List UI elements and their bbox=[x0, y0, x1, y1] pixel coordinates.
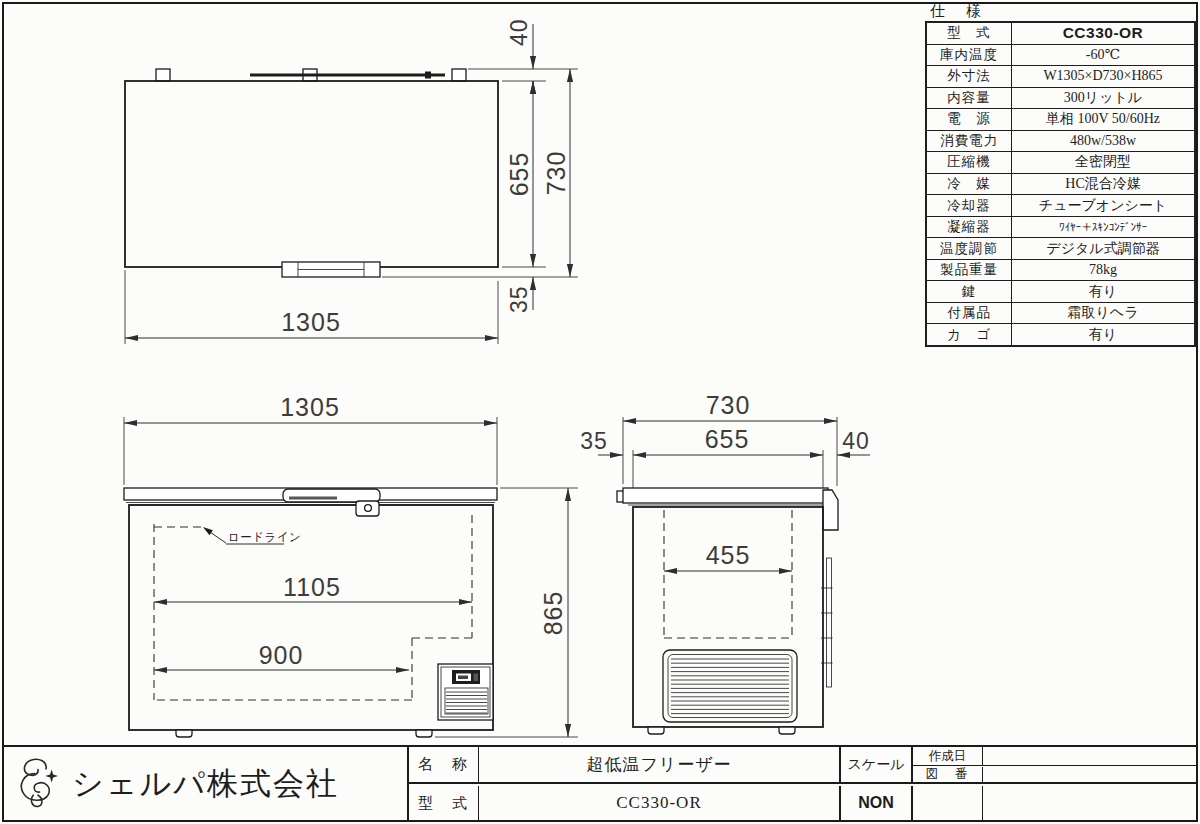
spec-label: 電 源 bbox=[927, 109, 1012, 130]
side-vent-grille bbox=[663, 650, 797, 722]
side-hinge bbox=[823, 490, 838, 530]
spec-label: 付属品 bbox=[927, 303, 1012, 324]
spec-row-outer-size: 外寸法 W1305×D730×H865 bbox=[927, 65, 1194, 87]
dim-side-inner: 655 bbox=[705, 425, 750, 453]
spec-row-compressor: 圧縮機 全密閉型 bbox=[927, 151, 1194, 173]
dim-side-total: 730 bbox=[706, 391, 751, 419]
spec-table: 型 式 CC330-OR 庫内温度 -60℃ 外寸法 W1305×D730×H8… bbox=[925, 21, 1196, 347]
side-lid bbox=[623, 488, 828, 503]
dim-top-total: 730 bbox=[542, 151, 570, 196]
spec-value: HC混合冷媒 bbox=[1012, 174, 1194, 195]
spec-row-condenser: 凝縮器 ﾜｲﾔｰ＋ｽｷﾝｺﾝﾃﾞﾝｻｰ bbox=[927, 216, 1194, 238]
scale-label-cell: スケール bbox=[841, 747, 913, 784]
dim-side-basket: 455 bbox=[706, 541, 751, 569]
spec-label: 凝縮器 bbox=[927, 217, 1012, 238]
company-cell: シェルパ株式会社 bbox=[2, 747, 409, 820]
side-foot-right bbox=[779, 727, 795, 734]
name-label-cell: 名 称 bbox=[409, 747, 479, 784]
spec-value: W1305×D730×H865 bbox=[1012, 66, 1194, 87]
spec-label: 型 式 bbox=[927, 23, 1012, 44]
spec-row-accessory: 付属品 霜取りヘラ bbox=[927, 302, 1194, 324]
spec-label: カ ゴ bbox=[927, 324, 1012, 345]
spec-row-thermostat: 温度調節 デジタル式調節器 bbox=[927, 237, 1194, 259]
spec-row-refrigerant: 冷 媒 HC混合冷媒 bbox=[927, 173, 1194, 195]
spec-value: 300リットル bbox=[1012, 88, 1194, 109]
spec-label: 外寸法 bbox=[927, 66, 1012, 87]
spec-label: 鍵 bbox=[927, 281, 1012, 302]
company-logo-icon bbox=[14, 754, 62, 814]
spec-value: 有り bbox=[1012, 281, 1194, 302]
hinge-right bbox=[452, 69, 466, 81]
dim-top-front: 35 bbox=[506, 285, 532, 313]
front-foot-left bbox=[176, 730, 192, 737]
dim-front-height: 865 bbox=[539, 591, 567, 636]
drawing-no-label-cell: 図 番 bbox=[913, 767, 983, 784]
spec-value: 全密閉型 bbox=[1012, 152, 1194, 173]
side-interior-outline bbox=[664, 510, 792, 638]
drawing-sheet: 40 655 730 35 1305 1305 bbox=[0, 0, 1200, 824]
spec-value: 霜取りヘラ bbox=[1012, 303, 1194, 324]
spec-row-key: 鍵 有り bbox=[927, 280, 1194, 302]
side-view: 730 35 655 40 455 bbox=[580, 391, 870, 734]
dim-front-width: 1305 bbox=[280, 393, 340, 421]
spec-label: 冷 媒 bbox=[927, 174, 1012, 195]
spec-row-capacity: 内容量 300リットル bbox=[927, 87, 1194, 109]
spec-value: 有り bbox=[1012, 324, 1194, 345]
spec-value: デジタル式調節器 bbox=[1012, 238, 1194, 259]
side-body bbox=[633, 507, 823, 727]
rod-stopper bbox=[425, 72, 431, 79]
top-view-body bbox=[125, 81, 498, 267]
spec-label: 庫内温度 bbox=[927, 45, 1012, 66]
scale-value-cell: NON bbox=[841, 786, 913, 820]
spec-value: CC330-OR bbox=[1012, 23, 1194, 44]
spec-label: 圧縮機 bbox=[927, 152, 1012, 173]
spec-row-consumption: 消費電力 480w/538w bbox=[927, 130, 1194, 152]
front-handle bbox=[283, 489, 380, 502]
spec-value: 78kg bbox=[1012, 260, 1194, 281]
title-block: シェルパ株式会社 名 称 超低温フリーザー 型 式 CC330-OR スケール … bbox=[2, 745, 1196, 820]
date-value-cell bbox=[983, 747, 1196, 766]
logo-sparkle bbox=[45, 769, 58, 782]
dim-front-lower: 900 bbox=[259, 641, 304, 669]
drawing-no-value-cell bbox=[983, 767, 1196, 784]
dim-front-inner: 1105 bbox=[283, 573, 341, 601]
dim-top-width: 1305 bbox=[281, 308, 341, 336]
spec-row-basket: カ ゴ 有り bbox=[927, 323, 1194, 345]
model-number-cell: CC330-OR bbox=[479, 786, 841, 820]
spec-label: 温度調節 bbox=[927, 238, 1012, 259]
dim-side-front: 35 bbox=[580, 428, 608, 454]
spec-row-temp: 庫内温度 -60℃ bbox=[927, 44, 1194, 66]
spec-row-power: 電 源 単相 100V 50/60Hz bbox=[927, 108, 1194, 130]
spec-row-cooler: 冷却器 チューブオンシート bbox=[927, 194, 1194, 216]
front-foot-right bbox=[416, 730, 432, 737]
hinge-left bbox=[156, 69, 170, 81]
top-view: 40 655 730 35 1305 bbox=[125, 18, 578, 344]
spec-label: 消費電力 bbox=[927, 131, 1012, 152]
spec-value: チューブオンシート bbox=[1012, 195, 1194, 216]
interior-outline bbox=[154, 515, 472, 700]
spec-label: 冷却器 bbox=[927, 195, 1012, 216]
spec-row-model: 型 式 CC330-OR bbox=[927, 23, 1194, 44]
side-foot-left bbox=[648, 727, 664, 734]
spec-value: ﾜｲﾔｰ＋ｽｷﾝｺﾝﾃﾞﾝｻｰ bbox=[1012, 217, 1194, 238]
front-view: 1305 bbox=[124, 393, 578, 737]
company-name: シェルパ株式会社 bbox=[72, 763, 339, 805]
model-label-cell: 型 式 bbox=[409, 786, 479, 820]
spec-row-weight: 製品重量 78kg bbox=[927, 259, 1194, 281]
dim-side-back: 40 bbox=[842, 428, 870, 454]
spec-value: 480w/538w bbox=[1012, 131, 1194, 152]
empty-value-cell bbox=[983, 786, 1196, 820]
callout-arrow bbox=[203, 527, 213, 535]
spec-label: 製品重量 bbox=[927, 260, 1012, 281]
condenser-strip bbox=[827, 558, 832, 687]
spec-value: 単相 100V 50/60Hz bbox=[1012, 109, 1194, 130]
spec-value: -60℃ bbox=[1012, 45, 1194, 66]
load-line-label: ロードライン bbox=[228, 531, 301, 543]
empty-label-cell bbox=[913, 786, 983, 820]
dim-top-back: 40 bbox=[506, 18, 532, 46]
date-label-cell: 作成日 bbox=[913, 747, 983, 766]
dim-top-depth: 655 bbox=[505, 152, 533, 197]
spec-table-title: 仕 様 bbox=[930, 2, 984, 21]
front-latch bbox=[356, 501, 379, 516]
spec-label: 内容量 bbox=[927, 88, 1012, 109]
product-name-cell: 超低温フリーザー bbox=[479, 747, 841, 784]
